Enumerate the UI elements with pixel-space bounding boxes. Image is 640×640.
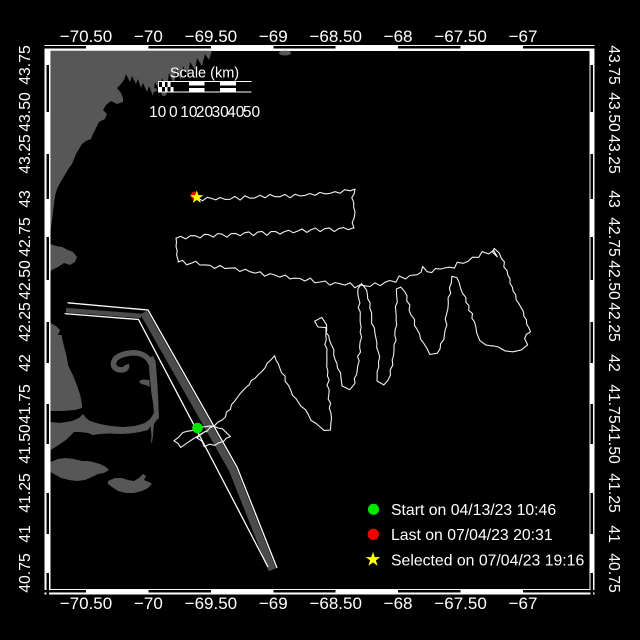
svg-text:42.75: 42.75 (605, 217, 622, 257)
svg-text:−67.50: −67.50 (434, 594, 486, 613)
svg-text:−68: −68 (384, 594, 413, 613)
svg-text:41.25: 41.25 (17, 473, 34, 513)
svg-text:41.50: 41.50 (17, 424, 34, 464)
svg-text:−69.50: −69.50 (185, 594, 237, 613)
svg-text:41: 41 (605, 525, 622, 543)
svg-text:Start on 04/13/23 10:46: Start on 04/13/23 10:46 (391, 502, 556, 519)
svg-text:43.75: 43.75 (605, 45, 622, 85)
svg-text:−70.50: −70.50 (60, 594, 112, 613)
svg-text:−70: −70 (134, 27, 163, 46)
svg-text:41.75: 41.75 (17, 384, 34, 424)
svg-text:−68.50: −68.50 (309, 27, 361, 46)
svg-text:42: 42 (605, 354, 622, 372)
svg-text:−70: −70 (134, 594, 163, 613)
svg-text:43.50: 43.50 (17, 92, 34, 132)
svg-text:43: 43 (17, 190, 34, 208)
svg-text:43.25: 43.25 (605, 134, 622, 174)
svg-text:42.25: 42.25 (17, 302, 34, 342)
svg-text:40.75: 40.75 (605, 553, 622, 593)
svg-text:42.50: 42.50 (17, 260, 34, 300)
svg-text:Last on 07/04/23 20:31: Last on 07/04/23 20:31 (391, 527, 553, 544)
svg-text:−69: −69 (259, 594, 288, 613)
svg-text:43.25: 43.25 (17, 134, 34, 174)
svg-text:−67: −67 (509, 27, 538, 46)
svg-text:42.50: 42.50 (605, 260, 622, 300)
svg-text:−69: −69 (259, 27, 288, 46)
svg-text:0: 0 (169, 104, 178, 121)
svg-text:−68: −68 (384, 27, 413, 46)
svg-text:42: 42 (17, 354, 34, 372)
svg-text:42.25: 42.25 (605, 302, 622, 342)
svg-text:−68.50: −68.50 (309, 594, 361, 613)
svg-text:43: 43 (605, 190, 622, 208)
svg-text:−67: −67 (509, 594, 538, 613)
svg-text:43.75: 43.75 (17, 45, 34, 85)
svg-text:10: 10 (149, 104, 167, 121)
svg-text:41: 41 (17, 525, 34, 543)
svg-text:41.50: 41.50 (605, 424, 622, 464)
svg-text:50: 50 (243, 104, 261, 121)
svg-text:−69.50: −69.50 (185, 27, 237, 46)
svg-text:Selected on 07/04/23 19:16: Selected on 07/04/23 19:16 (391, 553, 584, 570)
svg-text:41.25: 41.25 (605, 473, 622, 513)
svg-text:43.50: 43.50 (605, 92, 622, 132)
svg-text:40.75: 40.75 (17, 553, 34, 593)
svg-text:41.75: 41.75 (605, 384, 622, 424)
svg-text:Scale (km): Scale (km) (170, 66, 239, 82)
svg-text:−67.50: −67.50 (434, 27, 486, 46)
svg-text:42.75: 42.75 (17, 217, 34, 257)
svg-text:−70.50: −70.50 (60, 27, 112, 46)
